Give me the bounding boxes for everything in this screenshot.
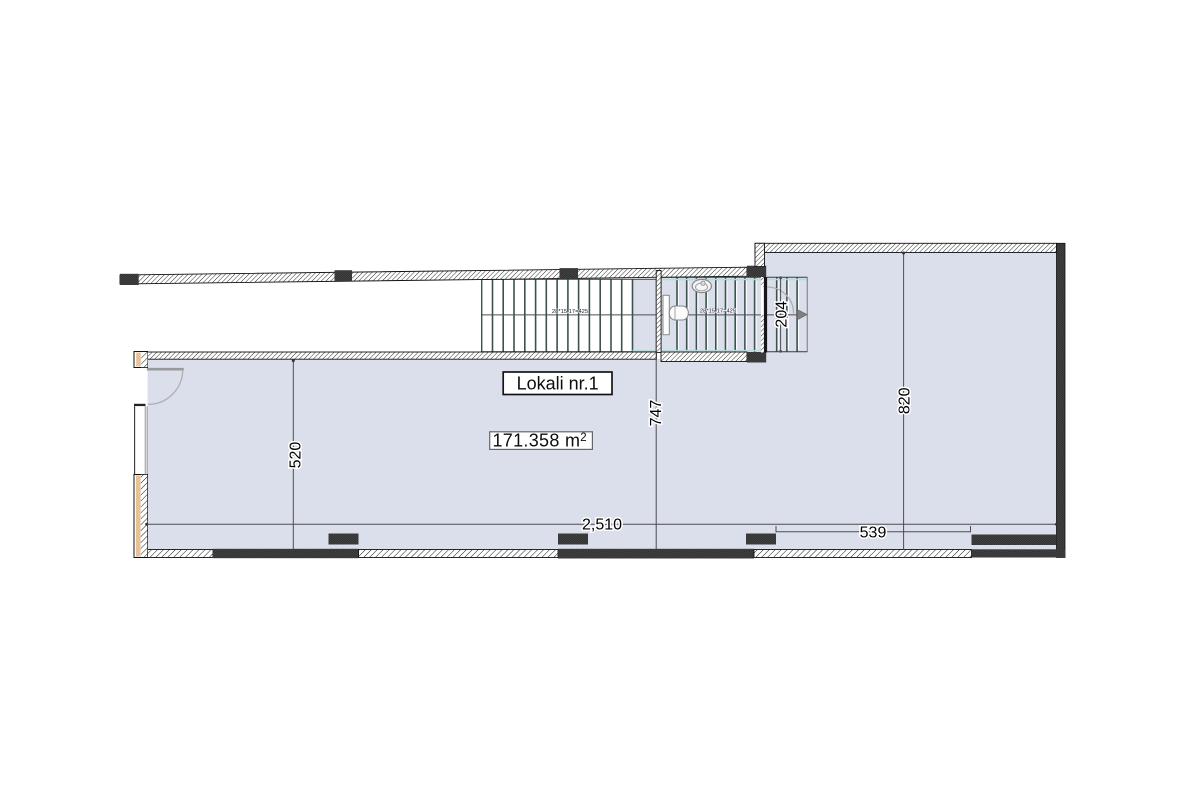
- svg-text:820: 820: [896, 387, 913, 414]
- svg-text:2,510: 2,510: [582, 517, 622, 534]
- svg-text:204: 204: [773, 301, 790, 328]
- svg-text:28*15.17=425: 28*15.17=425: [700, 309, 736, 315]
- svg-text:539: 539: [860, 524, 887, 541]
- svg-text:28*15.17=425: 28*15.17=425: [552, 309, 588, 315]
- svg-text:Lokali nr.1: Lokali nr.1: [517, 374, 599, 394]
- svg-text:747: 747: [648, 400, 665, 427]
- svg-text:171.358 m2: 171.358 m2: [493, 431, 587, 451]
- svg-text:520: 520: [287, 442, 304, 469]
